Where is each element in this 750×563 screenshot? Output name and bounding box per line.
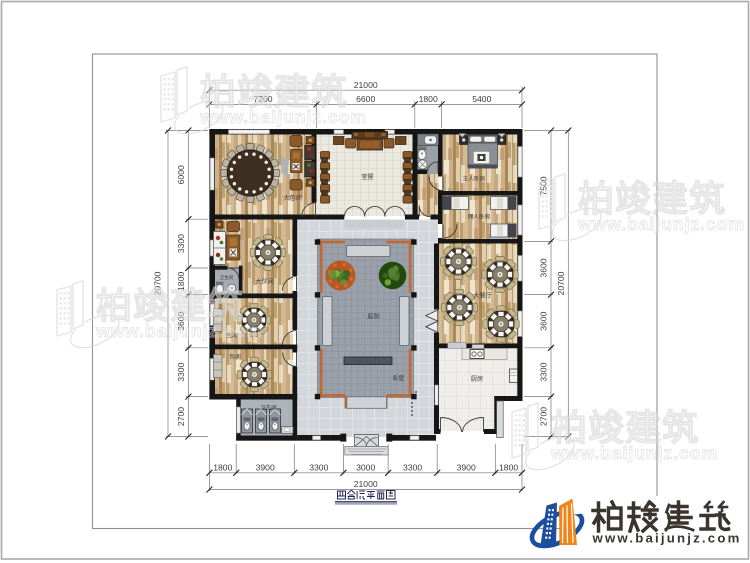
svg-text:21000: 21000: [354, 80, 378, 90]
svg-text:3300: 3300: [309, 462, 328, 472]
svg-text:3000: 3000: [356, 462, 375, 472]
svg-text:www.baijunjz.com: www.baijunjz.com: [199, 107, 367, 127]
svg-text:20700: 20700: [556, 271, 566, 295]
svg-text:大伙间: 大伙间: [255, 278, 274, 286]
svg-text:2700: 2700: [176, 407, 186, 426]
svg-text:1800: 1800: [499, 462, 518, 472]
svg-text:卫生间: 卫生间: [220, 274, 234, 281]
svg-text:3300: 3300: [176, 234, 186, 253]
svg-text:3600: 3600: [539, 311, 549, 330]
svg-text:1800: 1800: [419, 94, 438, 104]
svg-text:柏竣建筑: 柏竣建筑: [551, 407, 699, 448]
svg-text:3900: 3900: [457, 462, 476, 472]
svg-text:3300: 3300: [176, 362, 186, 381]
svg-text:大餐厅: 大餐厅: [473, 292, 492, 300]
svg-text:包间: 包间: [229, 353, 241, 361]
svg-text:主人卧房: 主人卧房: [463, 175, 486, 183]
svg-text:6600: 6600: [356, 94, 375, 104]
svg-text:3300: 3300: [403, 462, 422, 472]
svg-text:1800: 1800: [213, 462, 232, 472]
svg-text:3900: 3900: [256, 462, 275, 472]
svg-text:庭院: 庭院: [367, 313, 379, 321]
svg-text:21000: 21000: [354, 479, 378, 489]
svg-text:3300: 3300: [539, 362, 549, 381]
svg-text:5400: 5400: [472, 94, 491, 104]
svg-text:柏竣建筑: 柏竣建筑: [96, 285, 244, 326]
svg-text:2700: 2700: [539, 407, 549, 426]
svg-text:www.baijunjz.com: www.baijunjz.com: [577, 214, 745, 234]
svg-text:www.baijunjz.com: www.baijunjz.com: [95, 321, 263, 341]
svg-text:影壁: 影壁: [393, 374, 405, 382]
svg-text:大包间: 大包间: [283, 194, 302, 202]
svg-text:堂屋: 堂屋: [361, 173, 373, 181]
svg-text:6000: 6000: [176, 165, 186, 184]
svg-text:3600: 3600: [539, 258, 549, 277]
svg-text:卫生间: 卫生间: [260, 404, 276, 412]
svg-text:柏竣建筑: 柏竣建筑: [200, 71, 348, 112]
svg-text:www.baijunjz.com: www.baijunjz.com: [550, 443, 718, 463]
svg-text:厨房: 厨房: [471, 375, 483, 383]
svg-text:www.baijunjz.com: www.baijunjz.com: [592, 531, 742, 546]
svg-text:佣人卧房: 佣人卧房: [468, 213, 491, 221]
svg-text:柏竣建筑: 柏竣建筑: [578, 178, 726, 219]
